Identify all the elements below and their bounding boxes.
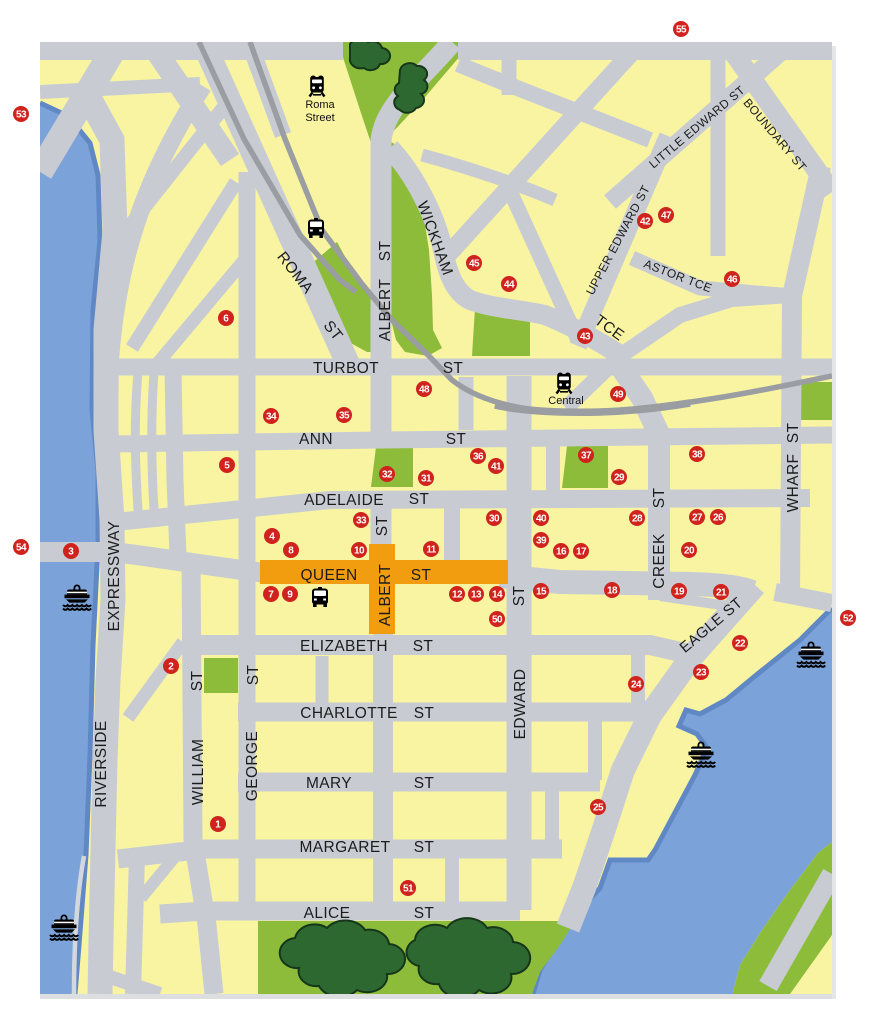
- svg-text:ST: ST: [443, 360, 464, 377]
- svg-text:36: 36: [473, 452, 484, 463]
- svg-text:ANN: ANN: [299, 431, 333, 448]
- svg-text:EDWARD: EDWARD: [512, 669, 529, 740]
- svg-text:9: 9: [287, 590, 293, 601]
- svg-text:TURBOT: TURBOT: [313, 360, 379, 377]
- svg-text:42: 42: [640, 217, 651, 228]
- svg-text:52: 52: [843, 614, 854, 625]
- svg-text:47: 47: [661, 211, 672, 222]
- svg-text:24: 24: [631, 680, 642, 691]
- svg-text:ADELAIDE: ADELAIDE: [304, 492, 384, 509]
- svg-text:54: 54: [16, 543, 27, 554]
- svg-text:37: 37: [581, 451, 592, 462]
- svg-text:50: 50: [492, 615, 503, 626]
- svg-text:20: 20: [684, 546, 695, 557]
- svg-text:QUEEN: QUEEN: [300, 567, 357, 584]
- svg-text:31: 31: [421, 474, 432, 485]
- svg-text:30: 30: [489, 514, 500, 525]
- svg-text:11: 11: [426, 545, 436, 556]
- svg-text:32: 32: [382, 470, 393, 481]
- svg-text:46: 46: [727, 275, 738, 286]
- svg-text:RIVERSIDE: RIVERSIDE: [93, 720, 110, 807]
- svg-text:48: 48: [419, 385, 430, 396]
- svg-text:Roma: Roma: [305, 99, 335, 111]
- svg-text:26: 26: [713, 513, 724, 524]
- svg-text:7: 7: [268, 590, 274, 601]
- svg-text:ST: ST: [414, 839, 435, 856]
- svg-text:29: 29: [614, 473, 625, 484]
- svg-text:28: 28: [632, 514, 643, 525]
- svg-text:ELIZABETH: ELIZABETH: [300, 638, 388, 655]
- svg-text:WILLIAM: WILLIAM: [190, 739, 207, 806]
- svg-text:5: 5: [224, 461, 230, 472]
- svg-text:ST: ST: [189, 671, 206, 692]
- svg-text:ST: ST: [651, 488, 668, 509]
- svg-text:ST: ST: [411, 567, 432, 584]
- svg-text:35: 35: [339, 411, 350, 422]
- svg-text:CREEK: CREEK: [651, 533, 668, 589]
- svg-text:MARGARET: MARGARET: [299, 839, 390, 856]
- svg-text:CHARLOTTE: CHARLOTTE: [300, 705, 397, 722]
- svg-text:ST: ST: [413, 638, 434, 655]
- svg-text:10: 10: [354, 546, 365, 557]
- svg-text:ST: ST: [446, 431, 467, 448]
- svg-text:Street: Street: [305, 112, 334, 124]
- svg-text:44: 44: [504, 280, 515, 291]
- svg-text:Central: Central: [548, 395, 583, 407]
- svg-text:ST: ST: [511, 586, 528, 607]
- svg-text:17: 17: [576, 547, 587, 558]
- svg-text:ST: ST: [377, 241, 394, 262]
- svg-text:ALBERT: ALBERT: [377, 564, 394, 627]
- svg-text:8: 8: [288, 546, 294, 557]
- svg-text:14: 14: [492, 590, 503, 601]
- svg-text:ALBERT: ALBERT: [377, 279, 394, 342]
- svg-text:18: 18: [607, 586, 618, 597]
- svg-text:6: 6: [223, 314, 229, 325]
- svg-text:55: 55: [676, 25, 687, 36]
- svg-text:EXPRESSWAY: EXPRESSWAY: [106, 521, 123, 632]
- svg-text:ST: ST: [245, 665, 262, 686]
- svg-text:16: 16: [556, 547, 567, 558]
- svg-text:ST: ST: [414, 705, 435, 722]
- svg-text:WHARF: WHARF: [785, 454, 802, 513]
- svg-text:GEORGE: GEORGE: [244, 731, 261, 801]
- svg-text:25: 25: [593, 803, 604, 814]
- svg-text:ST: ST: [409, 491, 430, 508]
- svg-text:27: 27: [692, 513, 703, 524]
- svg-text:MARY: MARY: [306, 775, 352, 792]
- svg-text:45: 45: [469, 259, 480, 270]
- svg-text:41: 41: [491, 462, 502, 473]
- svg-text:ST: ST: [414, 905, 435, 922]
- svg-text:13: 13: [471, 590, 482, 601]
- svg-text:39: 39: [536, 536, 547, 547]
- svg-text:23: 23: [696, 668, 707, 679]
- svg-text:38: 38: [692, 450, 703, 461]
- svg-text:51: 51: [403, 884, 414, 895]
- svg-text:ST: ST: [374, 516, 391, 537]
- svg-text:40: 40: [536, 514, 547, 525]
- svg-text:2: 2: [168, 662, 174, 673]
- svg-text:33: 33: [356, 516, 367, 527]
- svg-text:3: 3: [68, 547, 74, 558]
- svg-text:49: 49: [613, 390, 624, 401]
- svg-text:15: 15: [536, 587, 547, 598]
- svg-text:34: 34: [266, 412, 277, 423]
- svg-text:43: 43: [580, 332, 591, 343]
- svg-text:4: 4: [269, 532, 275, 543]
- svg-text:22: 22: [735, 639, 746, 650]
- svg-text:ALICE: ALICE: [304, 905, 351, 922]
- svg-text:19: 19: [674, 587, 685, 598]
- svg-text:ST: ST: [785, 423, 802, 444]
- svg-text:12: 12: [452, 590, 463, 601]
- svg-text:21: 21: [716, 588, 727, 599]
- svg-text:ST: ST: [414, 775, 435, 792]
- svg-text:1: 1: [215, 820, 221, 831]
- svg-text:53: 53: [16, 110, 27, 121]
